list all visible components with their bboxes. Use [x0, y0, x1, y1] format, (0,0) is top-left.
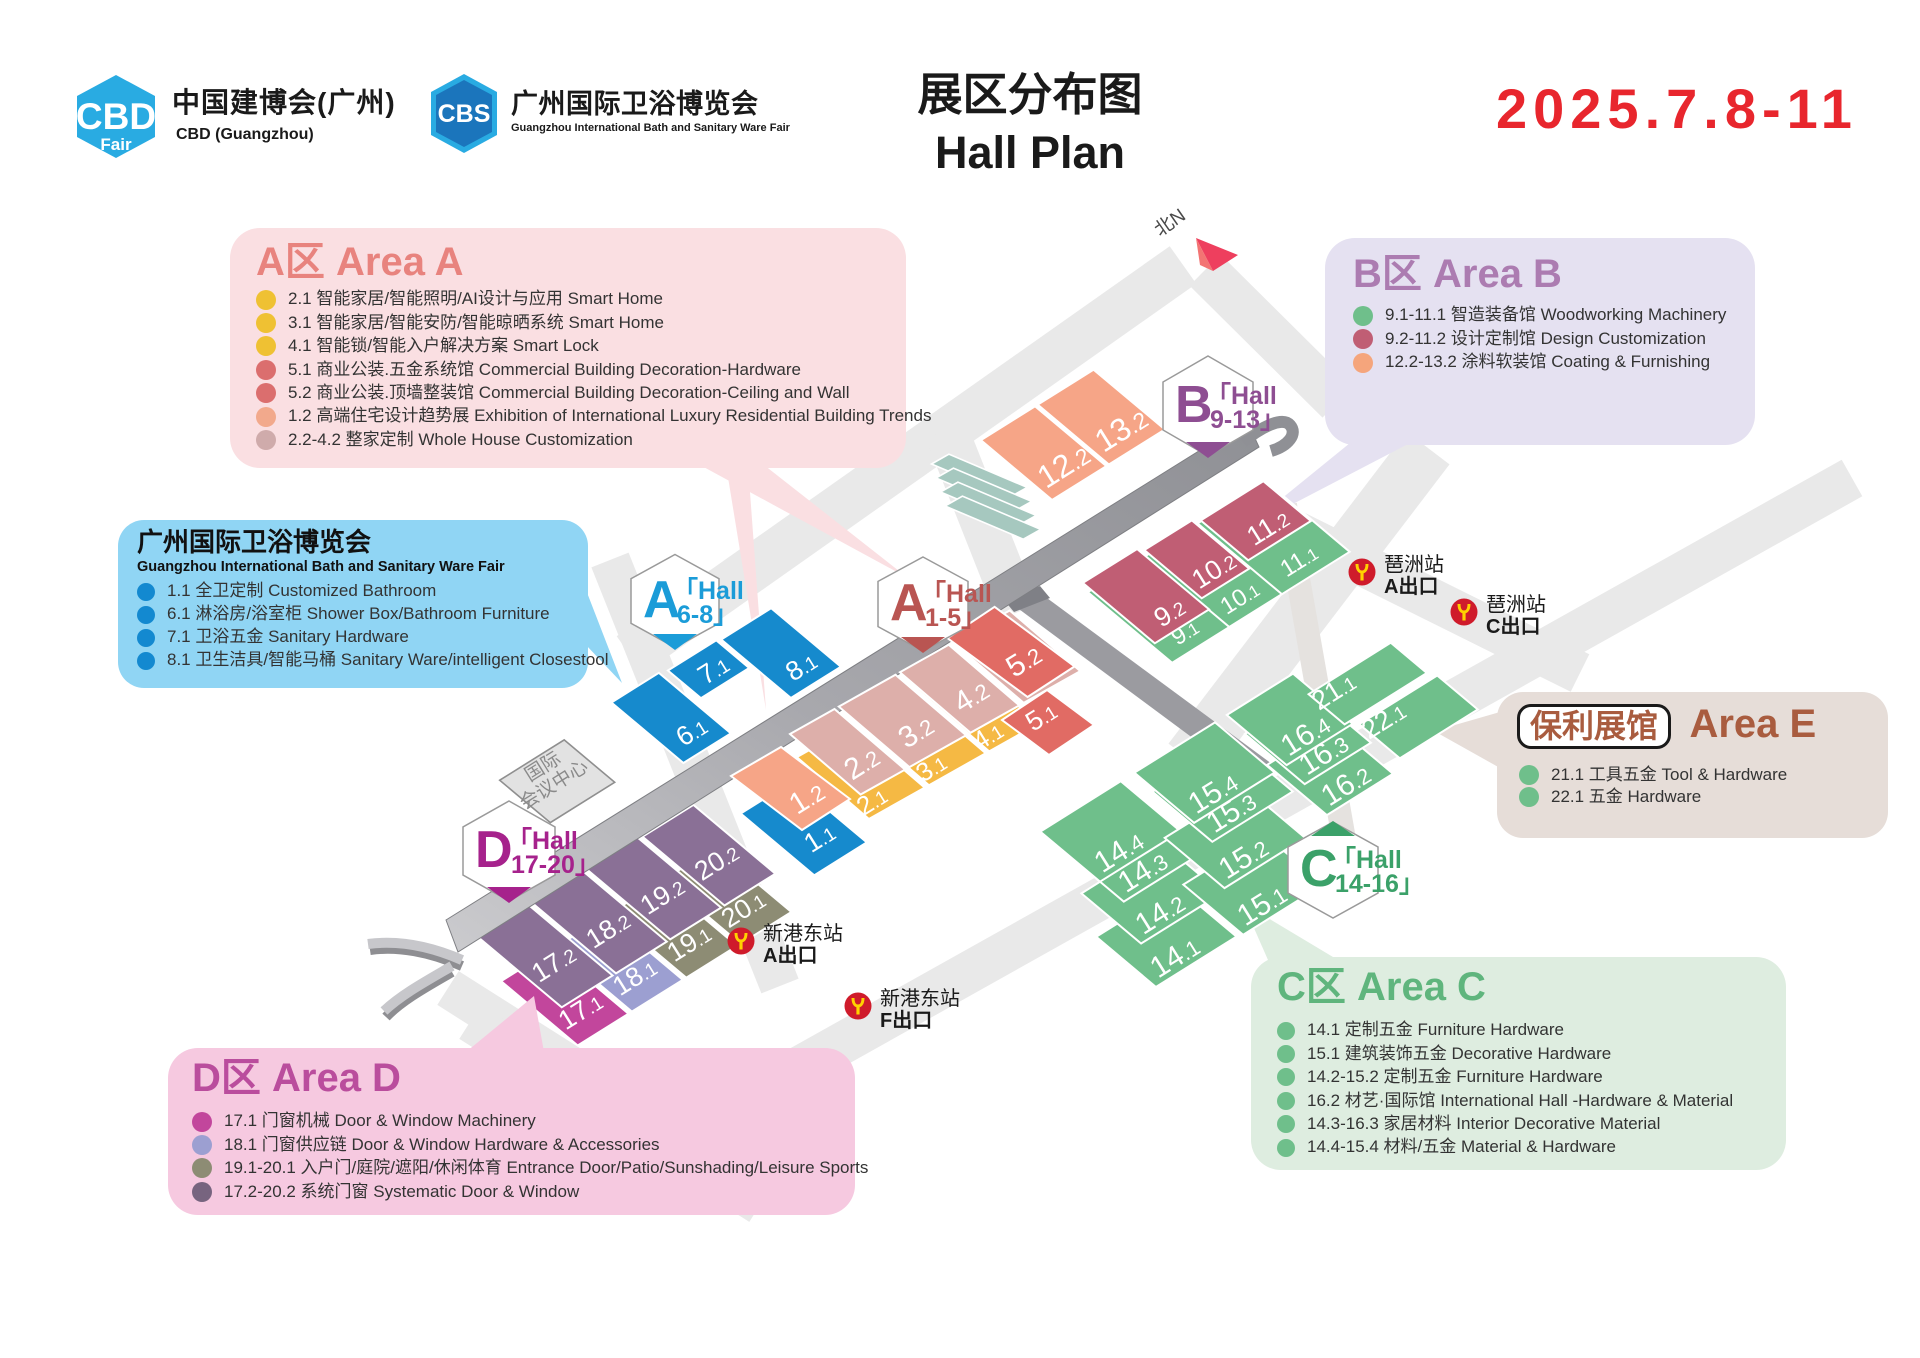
svg-text:Fair: Fair	[100, 135, 132, 154]
svg-text:6-8」: 6-8」	[677, 601, 738, 629]
svg-text:1-5」: 1-5」	[925, 604, 986, 632]
svg-text:CBS: CBS	[438, 100, 491, 128]
svg-text:琶洲站: 琶洲站	[1384, 553, 1444, 576]
svg-text:琶洲站: 琶洲站	[1486, 593, 1546, 616]
svg-text:17-20」: 17-20」	[511, 851, 600, 879]
svg-text:新港东站: 新港东站	[880, 987, 960, 1010]
svg-text:A出口: A出口	[1384, 575, 1438, 598]
svg-text:14-16」: 14-16」	[1335, 870, 1424, 898]
svg-text:9-13」: 9-13」	[1210, 406, 1285, 434]
svg-text:A出口: A出口	[763, 944, 817, 967]
svg-text:C出口: C出口	[1486, 615, 1540, 638]
svg-text:CBD: CBD	[76, 96, 156, 137]
svg-text:F出口: F出口	[880, 1009, 932, 1032]
svg-text:新港东站: 新港东站	[763, 922, 843, 945]
